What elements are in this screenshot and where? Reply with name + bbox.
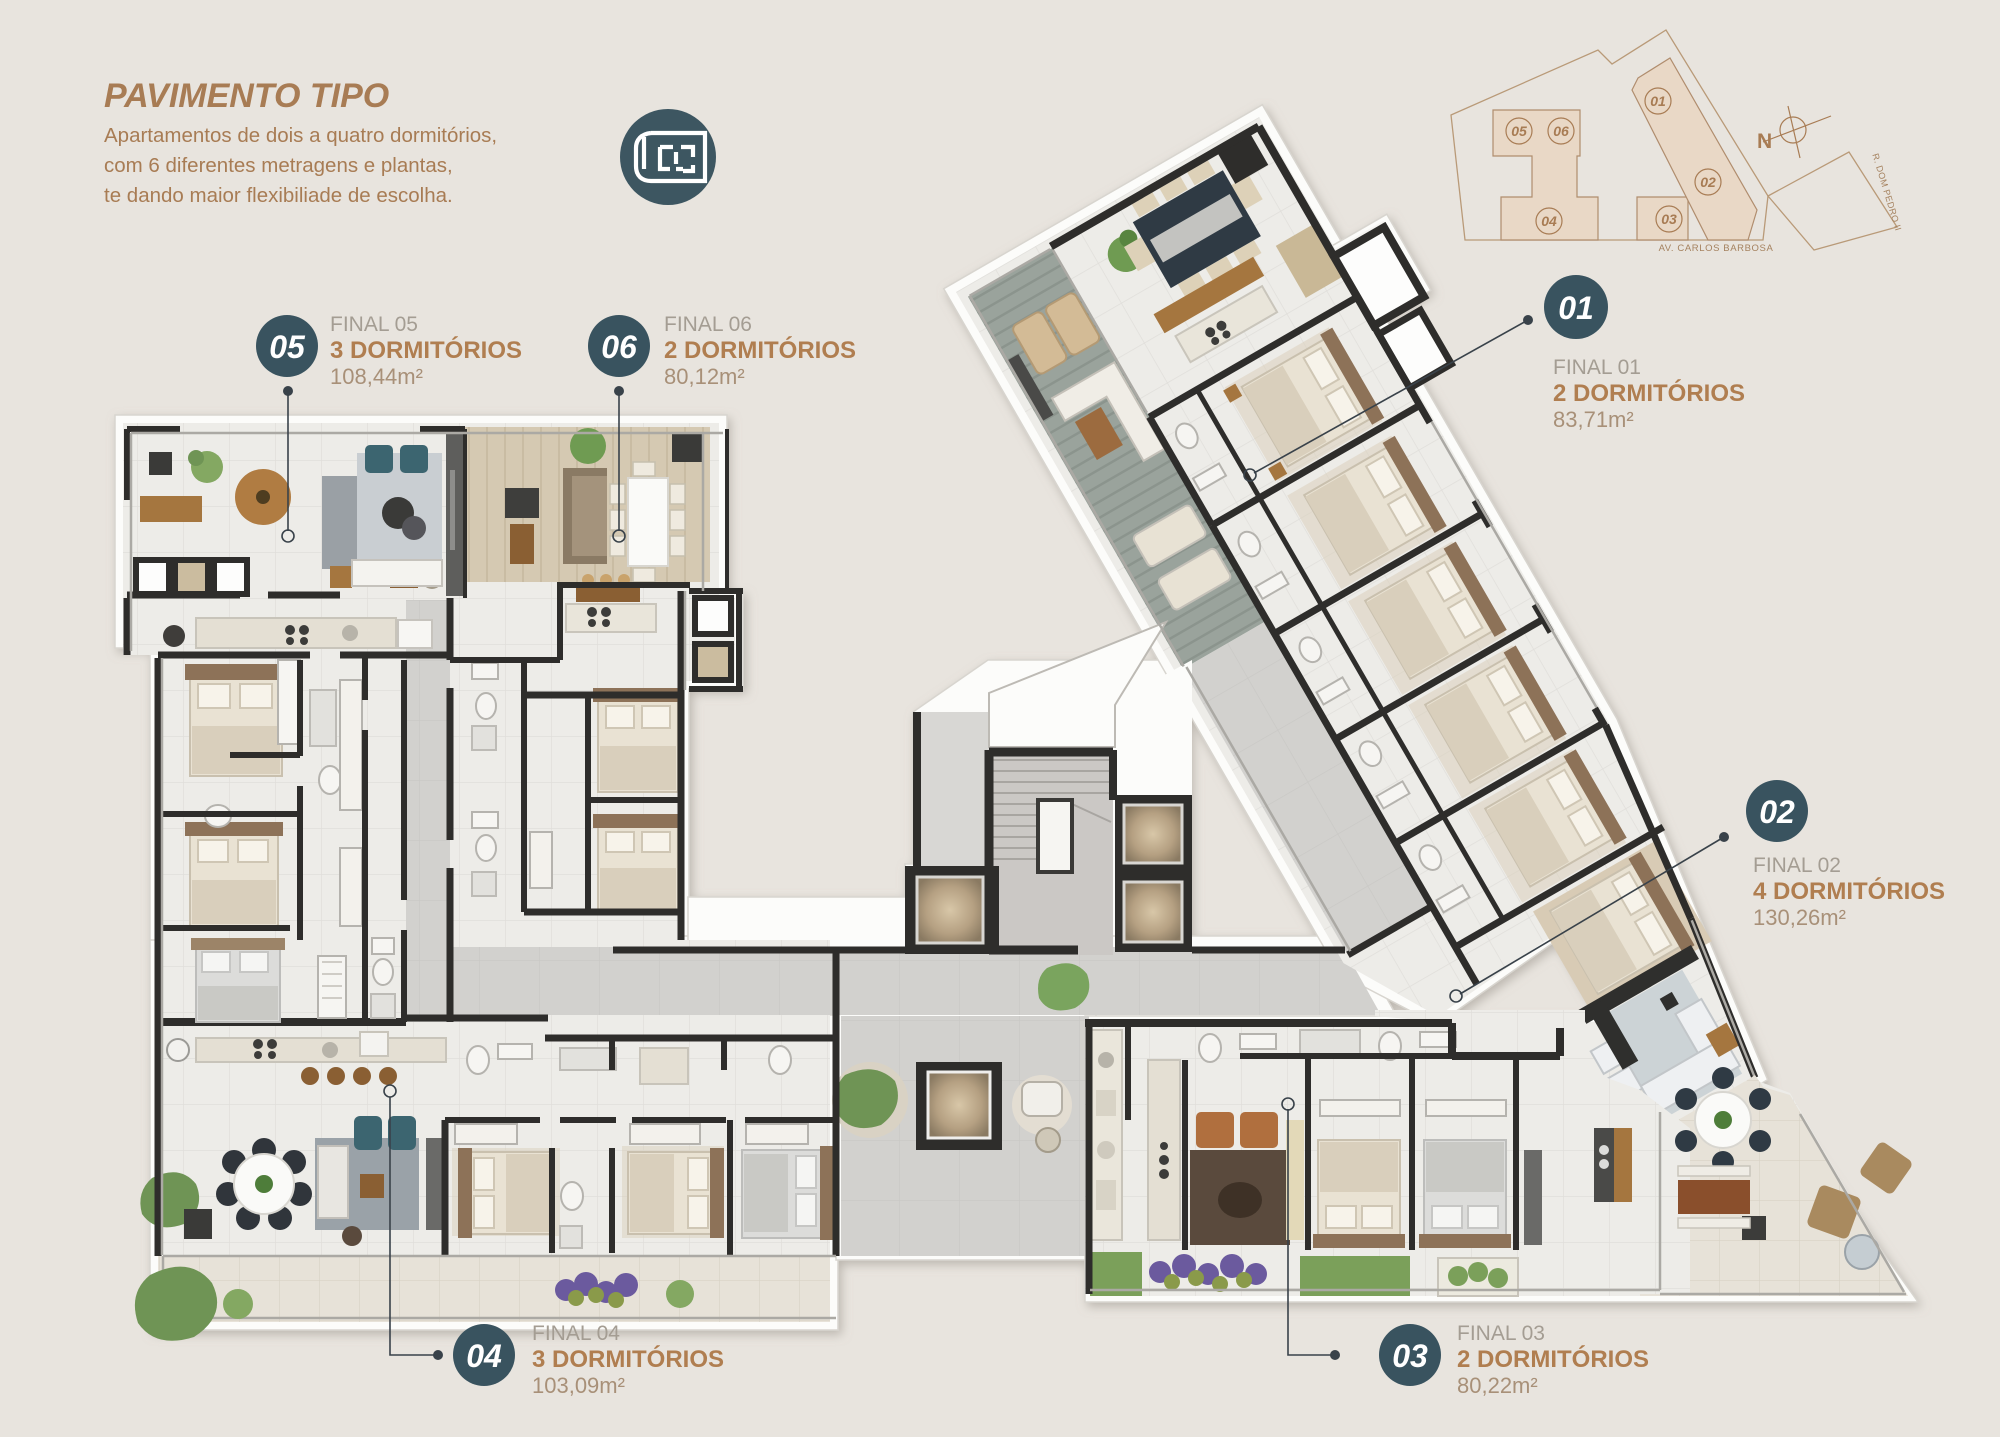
svg-text:AV. CARLOS BARBOSA: AV. CARLOS BARBOSA (1659, 243, 1774, 254)
svg-text:te dando maior flexibiliade de: te dando maior flexibiliade de escolha. (104, 184, 453, 207)
svg-text:FINAL 05: FINAL 05 (330, 313, 418, 336)
svg-text:06: 06 (1553, 123, 1569, 139)
svg-text:4 DORMITÓRIOS: 4 DORMITÓRIOS (1753, 877, 1945, 905)
svg-text:PAVIMENTO TIPO: PAVIMENTO TIPO (104, 77, 389, 115)
svg-text:3 DORMITÓRIOS: 3 DORMITÓRIOS (532, 1345, 724, 1373)
svg-text:Apartamentos de dois a quatro: Apartamentos de dois a quatro dormitório… (104, 124, 497, 147)
svg-text:04: 04 (466, 1338, 502, 1374)
svg-text:05: 05 (1511, 123, 1527, 139)
svg-text:2 DORMITÓRIOS: 2 DORMITÓRIOS (1457, 1345, 1649, 1373)
svg-text:FINAL 02: FINAL 02 (1753, 854, 1841, 877)
svg-text:05: 05 (269, 329, 306, 365)
svg-text:03: 03 (1661, 211, 1677, 227)
svg-text:03: 03 (1392, 1338, 1428, 1374)
svg-text:FINAL 03: FINAL 03 (1457, 1322, 1545, 1345)
svg-text:N: N (1757, 130, 1772, 153)
svg-text:2 DORMITÓRIOS: 2 DORMITÓRIOS (664, 336, 856, 364)
svg-text:06: 06 (601, 329, 637, 365)
svg-text:02: 02 (1700, 174, 1716, 190)
svg-text:83,71m²: 83,71m² (1553, 407, 1634, 432)
svg-text:FINAL 06: FINAL 06 (664, 313, 752, 336)
svg-text:com 6 diferentes metragens e p: com 6 diferentes metragens e plantas, (104, 154, 453, 177)
svg-text:108,44m²: 108,44m² (330, 364, 423, 389)
svg-text:130,26m²: 130,26m² (1753, 905, 1846, 930)
svg-text:80,12m²: 80,12m² (664, 364, 745, 389)
svg-text:3 DORMITÓRIOS: 3 DORMITÓRIOS (330, 336, 522, 364)
svg-text:80,22m²: 80,22m² (1457, 1373, 1538, 1398)
svg-text:FINAL 04: FINAL 04 (532, 1322, 620, 1345)
svg-text:2 DORMITÓRIOS: 2 DORMITÓRIOS (1553, 379, 1745, 407)
svg-text:103,09m²: 103,09m² (532, 1373, 625, 1398)
svg-text:01: 01 (1650, 93, 1666, 109)
svg-text:04: 04 (1541, 213, 1557, 229)
svg-text:01: 01 (1558, 290, 1594, 326)
svg-text:02: 02 (1759, 794, 1795, 830)
svg-text:FINAL 01: FINAL 01 (1553, 356, 1641, 379)
